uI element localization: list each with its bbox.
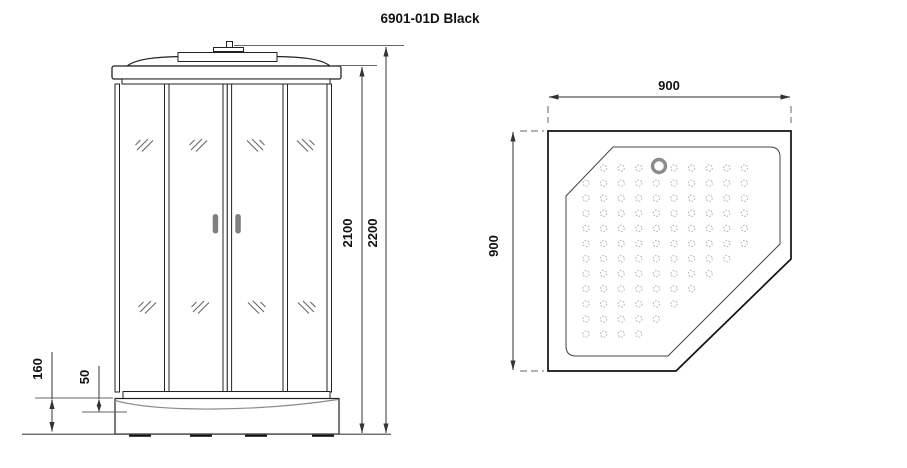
frame-post-left <box>115 84 120 392</box>
glass-mark <box>247 139 265 152</box>
dim-tray-width-label: 900 <box>658 78 680 93</box>
dim-total-height: 2200 <box>234 46 404 434</box>
panel-divider-left <box>165 84 170 392</box>
top-rail <box>122 79 330 84</box>
door-stile-right <box>227 84 231 392</box>
dim-tray-depth-top-label: 900 <box>486 235 501 257</box>
glass-mark <box>248 301 266 314</box>
door-handle-left <box>213 214 219 234</box>
dim-tray-depth-label: 50 <box>77 370 92 384</box>
door-stile-left <box>223 84 227 392</box>
glass-mark <box>136 139 154 152</box>
glass-mark <box>190 139 208 152</box>
frame-posts <box>115 84 332 392</box>
page-title: 6901-01D Black <box>380 11 480 26</box>
front-view: 2200 2100 160 50 <box>22 42 404 437</box>
technical-drawing: 6901-01D Black <box>0 0 907 468</box>
dim-cabin-height-label: 2100 <box>340 219 355 248</box>
glass-mark <box>297 139 315 152</box>
top-cornice <box>112 66 341 79</box>
top-view: 900 900 <box>486 78 791 371</box>
panel-divider-right <box>283 84 288 392</box>
door-handle-right <box>235 214 241 234</box>
glass-mark <box>192 301 210 314</box>
frame-post-right <box>327 84 332 392</box>
glass-mark <box>298 301 316 314</box>
tray-front <box>115 399 339 437</box>
tray-basin <box>566 147 780 356</box>
shower-head-bar <box>214 48 244 52</box>
glass-mark <box>139 301 157 314</box>
dim-total-height-label: 2200 <box>365 219 380 248</box>
dim-tray-depth-top: 900 <box>486 131 544 371</box>
roof-top-panel <box>178 53 277 62</box>
dim-tray-height-label: 160 <box>30 358 45 380</box>
dim-cabin-height: 2100 <box>335 66 377 434</box>
dim-tray-width: 900 <box>548 78 791 123</box>
dim-tray-height: 160 <box>30 352 113 432</box>
